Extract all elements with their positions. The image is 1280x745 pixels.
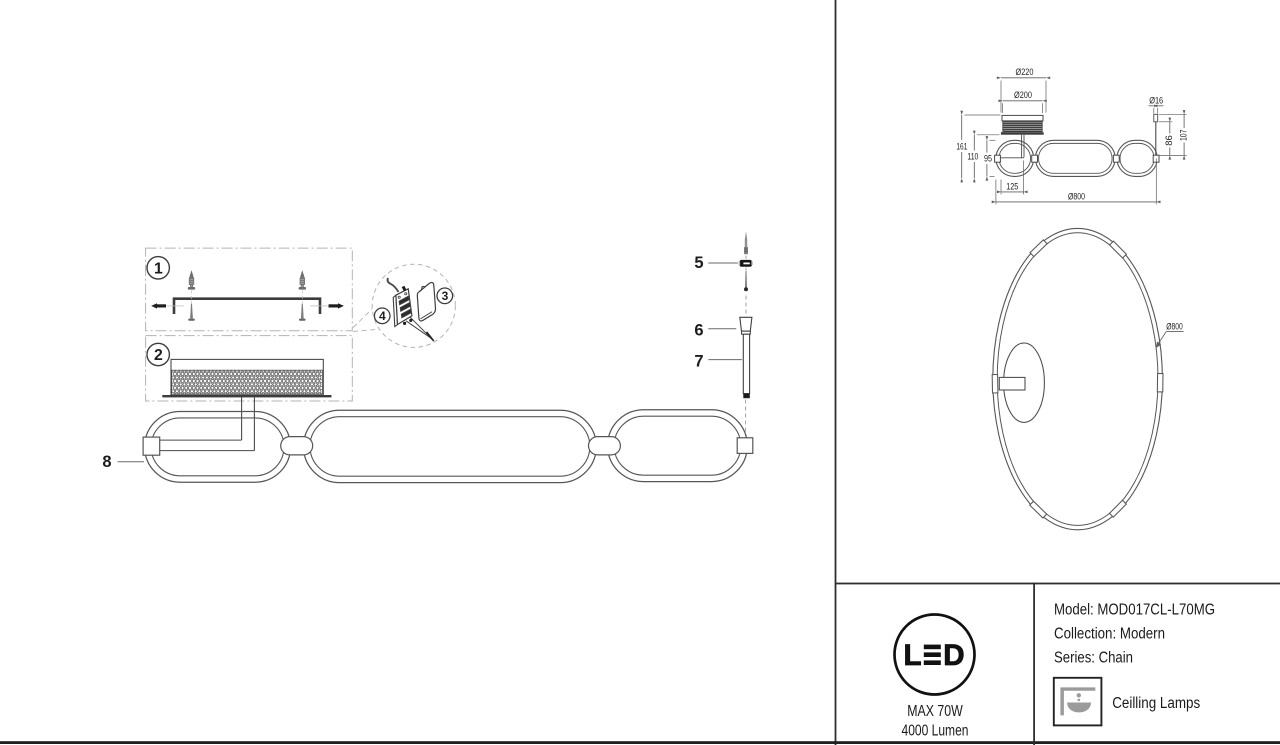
svg-text:MAX 70W: MAX 70W xyxy=(907,703,963,720)
svg-text:1: 1 xyxy=(154,261,163,278)
svg-text:107: 107 xyxy=(1178,129,1188,141)
svg-text:95: 95 xyxy=(984,153,992,163)
svg-text:Ø16: Ø16 xyxy=(1149,95,1163,105)
svg-text:161: 161 xyxy=(956,141,967,151)
svg-text:6: 6 xyxy=(694,321,703,339)
svg-text:Series: Chain: Series: Chain xyxy=(1054,650,1133,667)
svg-text:5: 5 xyxy=(694,254,703,272)
svg-text:Ø200: Ø200 xyxy=(1014,90,1032,100)
svg-text:L: L xyxy=(904,639,922,672)
svg-text:D: D xyxy=(943,639,964,672)
svg-text:4: 4 xyxy=(379,309,386,323)
svg-text:Ø800: Ø800 xyxy=(1068,191,1085,201)
svg-text:3: 3 xyxy=(442,289,449,303)
svg-text:125: 125 xyxy=(1006,182,1018,192)
svg-text:Ceilling Lamps: Ceilling Lamps xyxy=(1112,695,1200,712)
svg-text:Ø800: Ø800 xyxy=(1166,321,1183,331)
svg-text:2: 2 xyxy=(154,347,163,364)
svg-text:Model: MOD017CL-L70MG: Model: MOD017CL-L70MG xyxy=(1054,602,1215,619)
svg-text:Ø220: Ø220 xyxy=(1016,67,1034,77)
svg-text:86: 86 xyxy=(1164,135,1174,146)
svg-text:8: 8 xyxy=(102,453,111,471)
svg-text:Collection: Modern: Collection: Modern xyxy=(1054,626,1165,643)
svg-text:7: 7 xyxy=(694,352,703,370)
svg-text:4000 Lumen: 4000 Lumen xyxy=(902,723,969,740)
svg-text:110: 110 xyxy=(967,151,978,161)
